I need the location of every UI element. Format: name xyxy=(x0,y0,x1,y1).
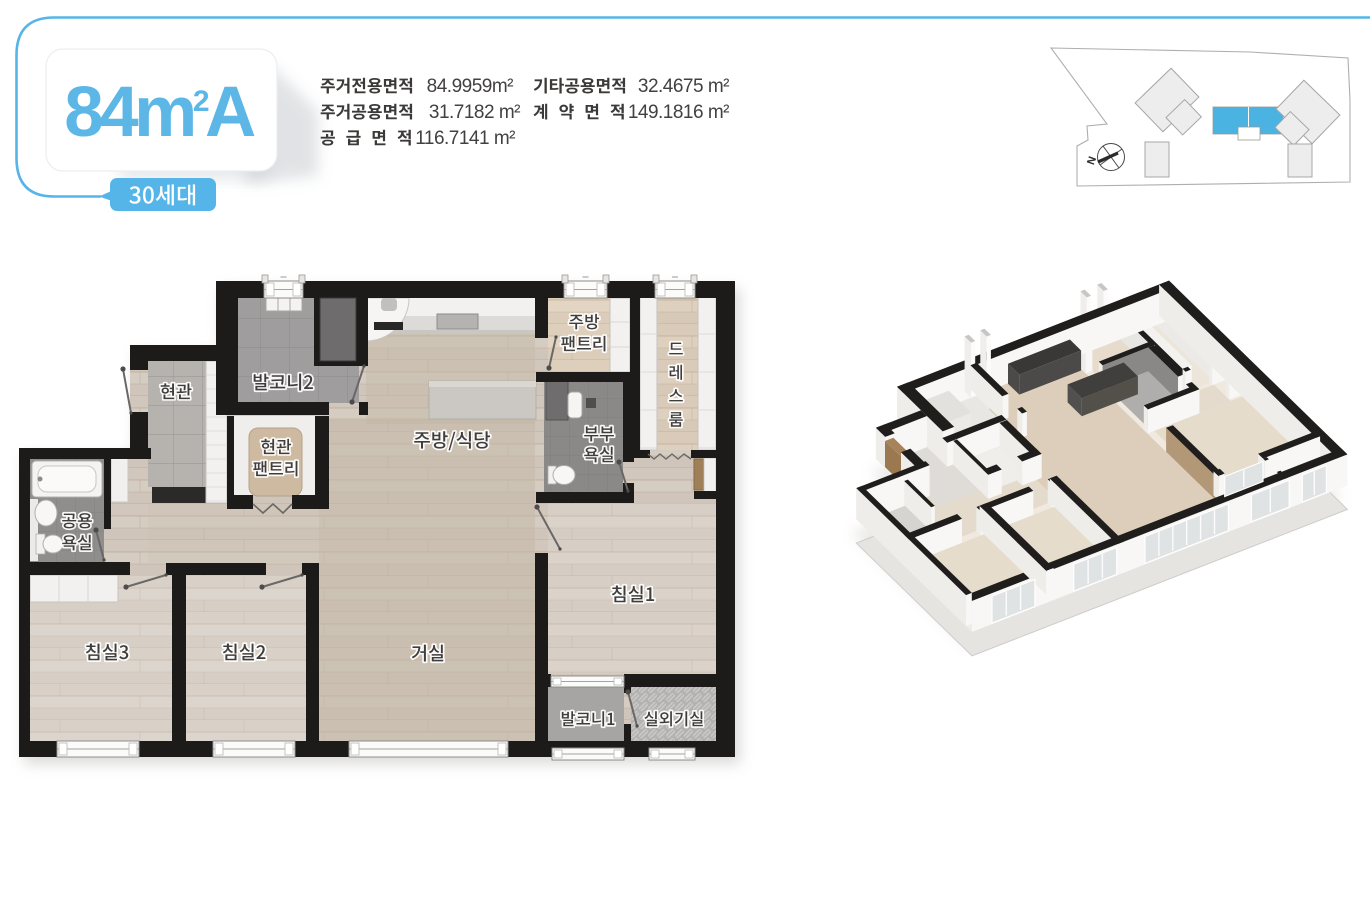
svg-text:149.1816 m²: 149.1816 m² xyxy=(628,102,729,123)
svg-text:116.7141 m²: 116.7141 m² xyxy=(415,128,515,149)
svg-text:84.9959m²: 84.9959m² xyxy=(427,76,514,97)
svg-text:31.7182 m²: 31.7182 m² xyxy=(429,102,520,123)
svg-text:84m2A: 84m2A xyxy=(64,73,255,152)
svg-text:32.4675 m²: 32.4675 m² xyxy=(638,76,729,97)
